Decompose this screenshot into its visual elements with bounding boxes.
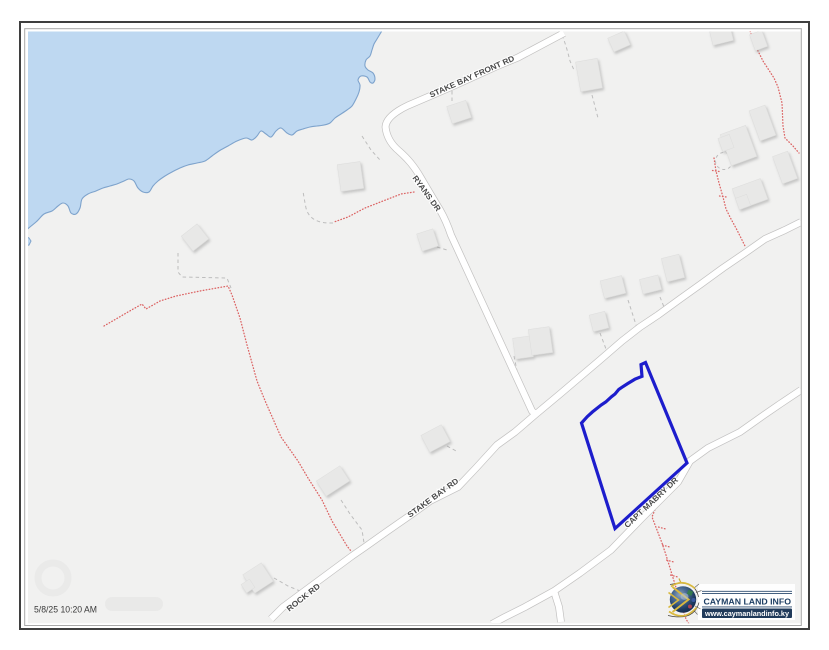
svg-text:CAYMAN LAND INFO: CAYMAN LAND INFO bbox=[704, 597, 792, 606]
svg-text:www.caymanlandinfo.ky: www.caymanlandinfo.ky bbox=[704, 609, 789, 618]
svg-text:5/8/25 10:20 AM: 5/8/25 10:20 AM bbox=[34, 605, 97, 615]
